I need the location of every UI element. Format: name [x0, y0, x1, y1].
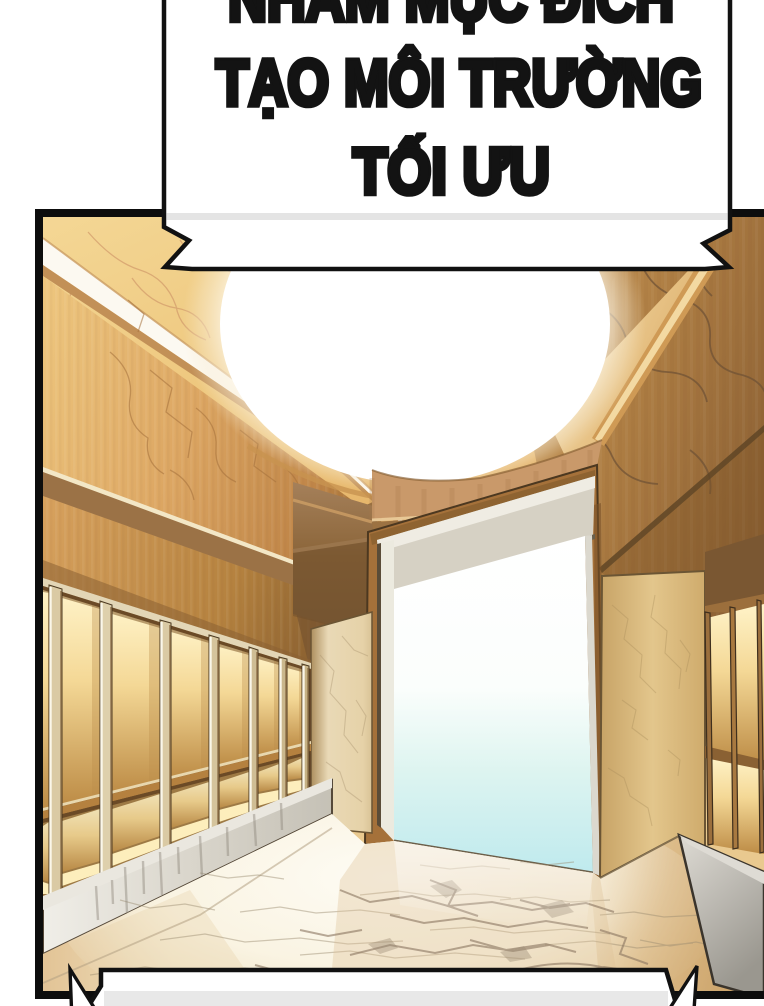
svg-text:NHẰM MỤC ĐÍCH: NHẰM MỤC ĐÍCH	[228, 0, 674, 35]
svg-text:TỐI ƯU: TỐI ƯU	[353, 135, 550, 208]
svg-text:TẠO MÔI TRƯỜNG: TẠO MÔI TRƯỜNG	[216, 46, 702, 119]
